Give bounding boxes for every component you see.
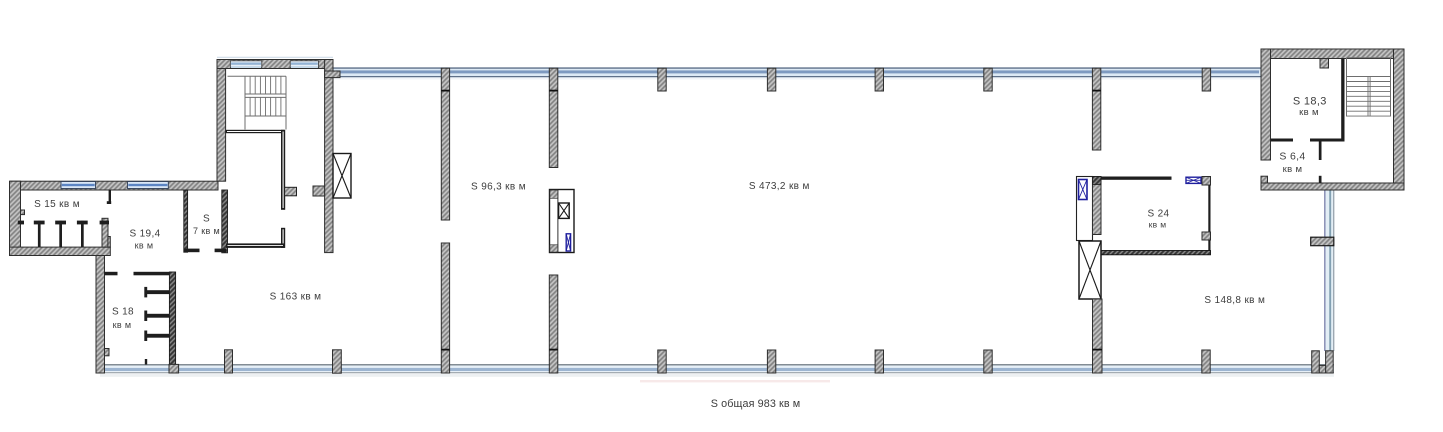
- svg-text:S 148,8 кв м: S 148,8 кв м: [1204, 295, 1265, 306]
- svg-text:S 6,4: S 6,4: [1279, 150, 1305, 162]
- svg-text:S 18: S 18: [112, 307, 134, 318]
- svg-text:кв м: кв м: [1283, 164, 1303, 175]
- svg-text:S общая 983 кв м: S общая 983 кв м: [711, 398, 801, 410]
- svg-text:S 18,3: S 18,3: [1293, 95, 1327, 107]
- svg-text:кв м: кв м: [113, 320, 132, 330]
- svg-text:кв м: кв м: [135, 241, 154, 251]
- svg-text:S 15 кв м: S 15 кв м: [34, 199, 80, 210]
- svg-text:7 кв м: 7 кв м: [193, 226, 220, 236]
- svg-text:S 96,3 кв м: S 96,3 кв м: [471, 181, 526, 192]
- svg-text:кв м: кв м: [1149, 219, 1167, 229]
- svg-text:S 473,2 кв м: S 473,2 кв м: [749, 181, 810, 192]
- svg-text:S 163 кв м: S 163 кв м: [270, 292, 322, 303]
- svg-text:кв м: кв м: [1299, 107, 1319, 118]
- svg-text:S: S: [203, 214, 210, 225]
- svg-text:S 24: S 24: [1148, 208, 1170, 219]
- svg-text:S 19,4: S 19,4: [129, 229, 160, 240]
